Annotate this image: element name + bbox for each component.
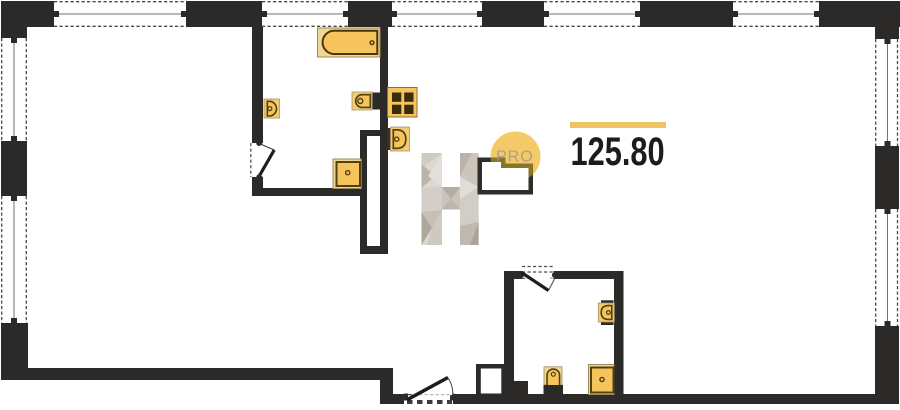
svg-text:PRO: PRO [496, 149, 534, 166]
svg-text:125.80: 125.80 [571, 129, 665, 174]
